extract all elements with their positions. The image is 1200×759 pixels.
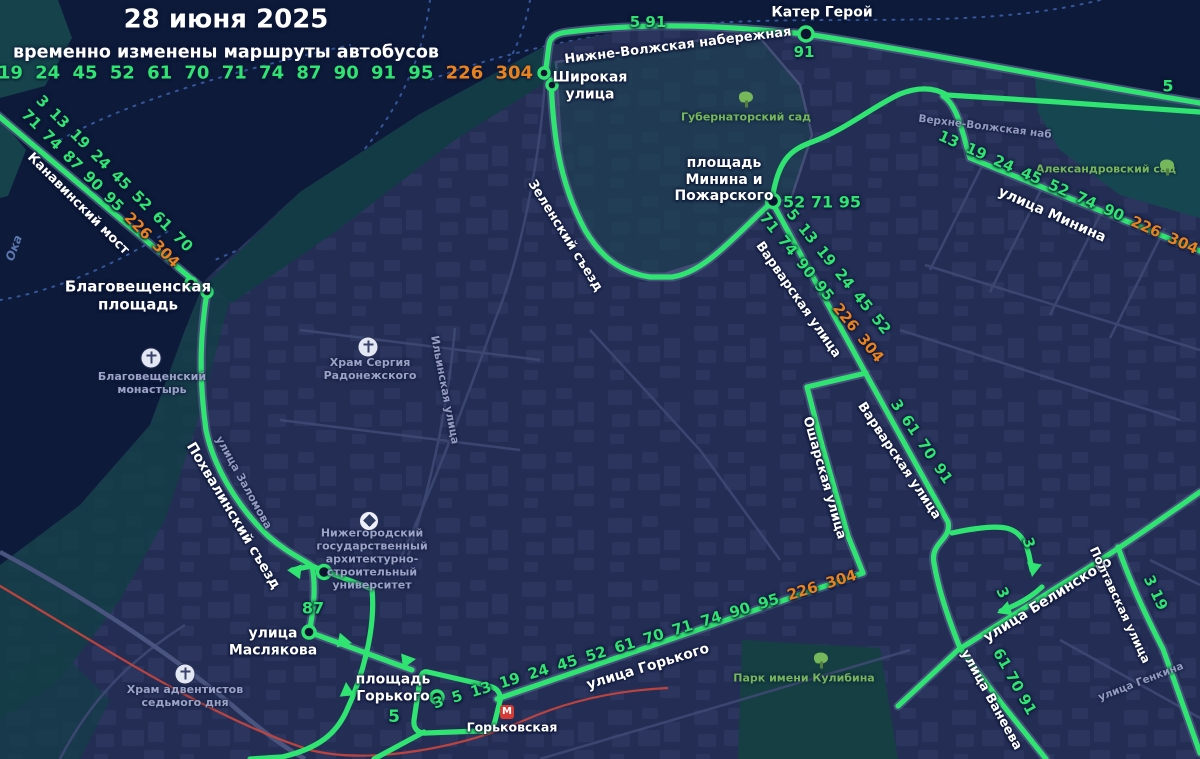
- bus-stop-dot: [767, 195, 780, 208]
- bus-stop-dot: [547, 80, 557, 90]
- bus-stop-dot: [799, 27, 813, 41]
- bus-stop-dot: [539, 68, 549, 78]
- bus-stop-dot: [202, 287, 212, 297]
- bus-stop-dot: [303, 626, 315, 638]
- bus-stop-dot: [318, 566, 331, 579]
- map-canvas: [0, 0, 1200, 759]
- bus-stop-dot: [186, 278, 196, 288]
- route-change-map: Катер Герой5 9191Нижне-Волжская набережн…: [0, 0, 1200, 759]
- bus-stop-dot: [431, 691, 443, 703]
